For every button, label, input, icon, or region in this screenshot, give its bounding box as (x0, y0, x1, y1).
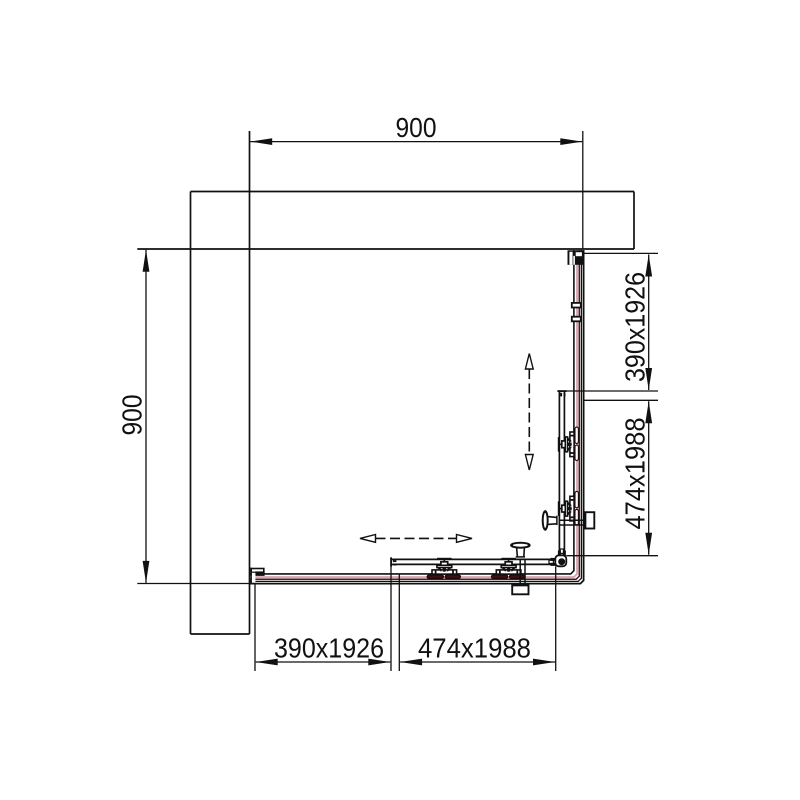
svg-text:474x1988: 474x1988 (418, 633, 531, 664)
svg-text:390x1926: 390x1926 (274, 633, 384, 664)
svg-text:900: 900 (396, 112, 437, 143)
svg-text:390x1926: 390x1926 (620, 272, 651, 382)
svg-text:474x1988: 474x1988 (620, 418, 651, 530)
svg-text:900: 900 (117, 395, 148, 436)
